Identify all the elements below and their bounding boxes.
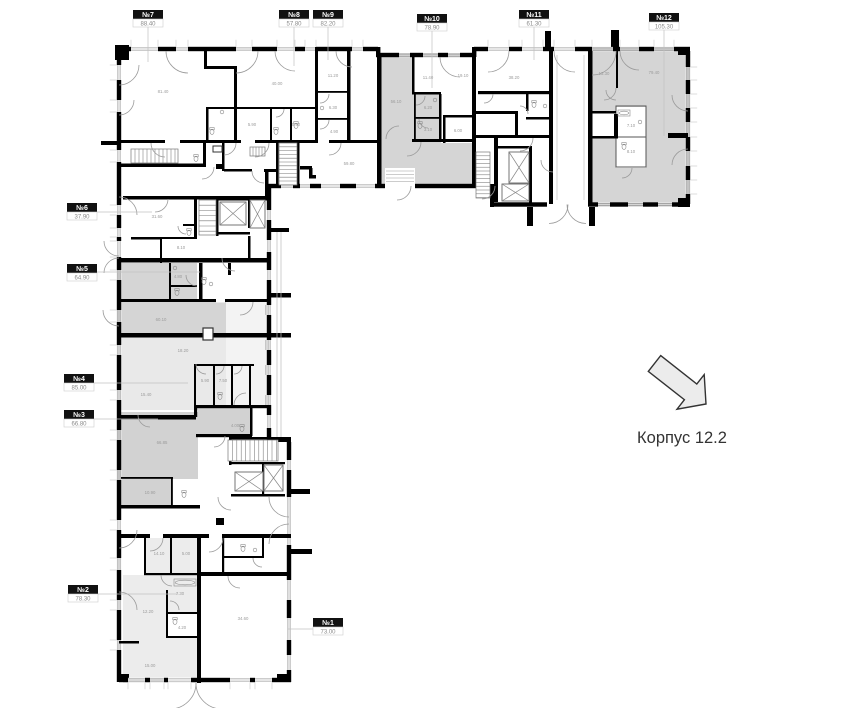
svg-text:6.20: 6.20 (424, 105, 433, 110)
svg-text:4.90: 4.90 (330, 129, 339, 134)
svg-text:37.90: 37.90 (74, 214, 90, 220)
svg-text:82.20: 82.20 (320, 21, 336, 27)
svg-text:№11: №11 (526, 11, 541, 19)
svg-text:5.90: 5.90 (248, 122, 257, 127)
svg-text:66.85: 66.85 (157, 440, 168, 445)
svg-text:19.10: 19.10 (458, 73, 469, 78)
svg-text:7.10: 7.10 (627, 123, 636, 128)
svg-text:78.30: 78.30 (75, 596, 91, 602)
svg-text:61.30: 61.30 (526, 21, 542, 27)
svg-text:59.80: 59.80 (344, 161, 355, 166)
svg-text:8.10: 8.10 (177, 245, 186, 250)
svg-text:81.40: 81.40 (158, 89, 169, 94)
svg-text:5.00: 5.00 (182, 551, 191, 556)
svg-text:10.90: 10.90 (145, 490, 156, 495)
svg-text:№2: №2 (77, 586, 89, 594)
svg-text:13.30: 13.30 (599, 71, 610, 76)
svg-text:7.50: 7.50 (219, 378, 228, 383)
svg-text:№12: №12 (656, 14, 672, 22)
svg-text:6.30: 6.30 (329, 105, 338, 110)
svg-text:78.90: 78.90 (424, 25, 440, 31)
svg-text:38.20: 38.20 (509, 75, 520, 80)
svg-text:73.00: 73.00 (320, 629, 336, 635)
svg-text:№8: №8 (288, 11, 300, 19)
svg-text:14.10: 14.10 (154, 551, 165, 556)
svg-text:№5: №5 (76, 265, 88, 273)
svg-text:8.10: 8.10 (627, 149, 636, 154)
svg-text:№6: №6 (76, 204, 88, 212)
svg-text:64.90: 64.90 (74, 275, 90, 281)
svg-text:Корпус 12.2: Корпус 12.2 (637, 429, 727, 447)
svg-text:31.60: 31.60 (152, 214, 163, 219)
svg-text:№4: №4 (73, 375, 85, 383)
svg-text:85.00: 85.00 (71, 385, 87, 391)
svg-text:№7: №7 (142, 11, 154, 19)
svg-text:88.40: 88.40 (140, 21, 156, 27)
svg-text:15.40: 15.40 (141, 392, 152, 397)
svg-text:60.10: 60.10 (156, 317, 167, 322)
svg-text:15.00: 15.00 (145, 663, 156, 668)
svg-text:3.10: 3.10 (424, 127, 433, 132)
svg-text:66.80: 66.80 (71, 421, 87, 427)
svg-text:57.80: 57.80 (286, 21, 302, 27)
svg-text:34.60: 34.60 (238, 616, 249, 621)
svg-text:7.30: 7.30 (176, 591, 185, 596)
svg-text:№3: №3 (73, 411, 85, 419)
svg-text:4.80: 4.80 (174, 274, 183, 279)
svg-text:6.00: 6.00 (454, 128, 463, 133)
svg-text:12.20: 12.20 (143, 609, 154, 614)
svg-text:18.20: 18.20 (178, 348, 189, 353)
svg-text:5.90: 5.90 (201, 378, 210, 383)
svg-text:56.10: 56.10 (391, 99, 402, 104)
svg-text:4.00: 4.00 (231, 423, 240, 428)
svg-text:№10: №10 (424, 15, 440, 23)
svg-text:№9: №9 (322, 11, 334, 19)
svg-text:4.20: 4.20 (178, 625, 187, 630)
svg-text:40.00: 40.00 (272, 81, 283, 86)
svg-text:№1: №1 (322, 619, 334, 627)
svg-text:79.40: 79.40 (649, 70, 660, 75)
svg-text:5.90: 5.90 (292, 122, 301, 127)
svg-text:11.20: 11.20 (328, 73, 339, 78)
svg-text:105.30: 105.30 (655, 24, 674, 30)
